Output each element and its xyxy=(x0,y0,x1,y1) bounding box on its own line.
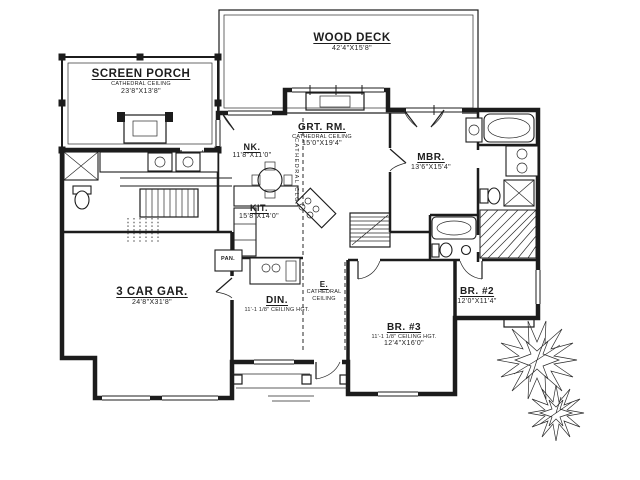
room-label-nook: NK. 11'8"X11'0" xyxy=(232,142,271,160)
room-name: BR. #2 xyxy=(457,286,497,298)
room-ceiling-note: 11'-1 1/8" CEILING HGT. xyxy=(372,334,437,340)
room-ceiling-note: 11'-1 1/8" CEILING HGT. xyxy=(245,307,310,313)
room-label-bedroom-3: BR. #3 11'-1 1/8" CEILING HGT. 12'4"X16'… xyxy=(372,322,437,348)
hall-bath-fixtures xyxy=(432,217,476,257)
cathedral-clg-vertical-label: CATHEDRAL CLG. xyxy=(293,138,299,206)
room-name: SCREEN PORCH xyxy=(92,68,191,81)
room-name: BR. #3 xyxy=(372,322,437,334)
stair-main xyxy=(350,213,390,247)
room-dims: 13'6"X15'4" xyxy=(411,164,451,172)
room-label-entry: E. CATHEDRAL CEILING xyxy=(304,280,344,302)
tree-large xyxy=(497,321,577,399)
room-label-garage: 3 CAR GAR. 24'8"X31'8" xyxy=(116,286,187,307)
ceiling-dash-lines xyxy=(303,118,345,352)
room-name: DIN. xyxy=(245,295,310,307)
floor-plan-canvas: WOOD DECK 42'4"X15'8" SCREEN PORCH CATHE… xyxy=(0,0,640,480)
pantry-label: PAN. xyxy=(221,256,235,262)
room-dims: 12'0"X11'4" xyxy=(457,298,497,306)
room-name: 3 CAR GAR. xyxy=(116,286,187,299)
fireplace xyxy=(306,93,364,110)
room-dims: 42'4"X15'8" xyxy=(313,45,390,53)
room-label-bedroom-2: BR. #2 12'0"X11'4" xyxy=(457,286,497,306)
room-dims: 11'8"X11'0" xyxy=(232,152,271,160)
room-ceiling-note: CATHEDRAL CEILING xyxy=(292,134,352,140)
wood-deck-outline xyxy=(219,10,478,113)
room-name: MBR. xyxy=(411,152,451,164)
room-dims: 23'8"X13'8" xyxy=(92,88,191,96)
room-dims: 15'0"X19'4" xyxy=(292,140,352,148)
room-label-screen-porch: SCREEN PORCH CATHEDRAL CEILING 23'8"X13'… xyxy=(92,68,191,96)
front-porch xyxy=(232,374,349,401)
room-dims: 12'4"X16'0" xyxy=(372,340,437,348)
stair-basement xyxy=(128,189,198,242)
room-name: WOOD DECK xyxy=(313,32,390,45)
room-label-wood-deck: WOOD DECK 42'4"X15'8" xyxy=(313,32,390,53)
room-name: KIT. xyxy=(239,203,279,213)
room-name: NK. xyxy=(232,142,271,152)
stair-rails xyxy=(120,178,232,186)
room-name: GRT. RM. xyxy=(292,122,352,134)
tree-small xyxy=(528,385,584,441)
laundry-fixtures xyxy=(64,152,218,209)
kitchen-fixtures xyxy=(234,186,336,284)
room-label-master-bedroom: MBR. 13'6"X15'4" xyxy=(411,152,451,172)
room-name: E. xyxy=(304,280,344,289)
room-label-dining: DIN. 11'-1 1/8" CEILING HGT. xyxy=(245,295,310,313)
room-dims: 24'8"X31'8" xyxy=(116,299,187,307)
room-ceiling-note: CATHEDRAL CEILING xyxy=(304,289,344,302)
porch-grill xyxy=(117,112,173,143)
room-dims: 15'8"X14'0" xyxy=(239,213,279,221)
room-label-great-room: GRT. RM. CATHEDRAL CEILING 15'0"X19'4" xyxy=(292,122,352,148)
room-label-kitchen: KIT. 15'8"X14'0" xyxy=(239,203,279,221)
